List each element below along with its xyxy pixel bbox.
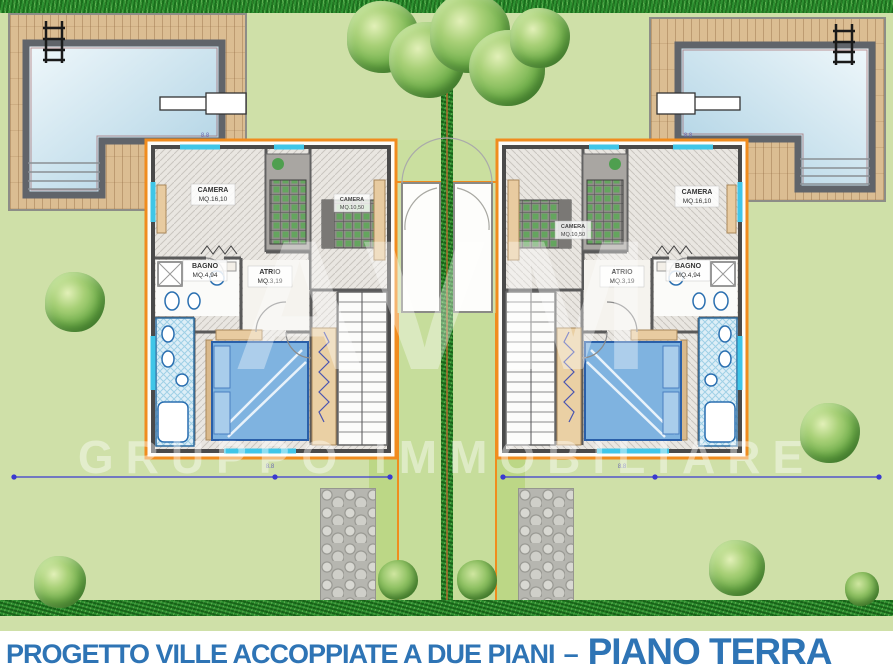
svg-text:MQ.4,94: MQ.4,94 — [676, 272, 701, 279]
entry-corridor-left — [401, 182, 441, 313]
svg-text:BAGNO: BAGNO — [192, 263, 219, 270]
caption-part1: PROGETTO VILLE ACCOPPIATE A DUE PIANI — [6, 639, 555, 670]
tree-icon — [45, 272, 105, 332]
svg-text:MQ.3,19: MQ.3,19 — [258, 278, 283, 285]
bush-icon — [378, 560, 418, 600]
dividing-hedge — [441, 12, 453, 603]
svg-text:ATRIO: ATRIO — [611, 269, 633, 276]
pool-deck-right — [649, 17, 886, 202]
tree-icon — [709, 540, 765, 596]
gate-swing-arc — [405, 188, 437, 230]
caption-part2: PIANO TERRA — [588, 633, 832, 670]
dimension-line-right — [501, 475, 881, 479]
pool-left — [10, 15, 249, 213]
gate-swing-arc — [457, 188, 489, 230]
svg-text:MQ.3,19: MQ.3,19 — [610, 278, 635, 285]
svg-text:8.8: 8.8 — [266, 464, 275, 470]
svg-text:MQ.10,50: MQ.10,50 — [561, 232, 585, 238]
svg-text:CAMERA: CAMERA — [340, 197, 364, 203]
svg-text:CAMERA: CAMERA — [561, 224, 585, 230]
bush-icon — [845, 572, 879, 606]
room-label-camera2-right: CAMERA MQ.10,50 — [555, 221, 591, 239]
svg-text:8.8: 8.8 — [618, 464, 627, 470]
bottom-hedge-strip — [0, 600, 893, 616]
cobblestone-path-right — [518, 488, 574, 602]
tree-icon — [510, 8, 570, 68]
dimension-line-left — [12, 475, 392, 479]
svg-text:MQ.4,94: MQ.4,94 — [193, 272, 218, 279]
room-label-bagno-right: BAGNO MQ.4,94 — [666, 260, 710, 281]
svg-text:BAGNO: BAGNO — [675, 263, 702, 270]
room-label-camera2-left: CAMERA MQ.10,50 — [334, 194, 370, 212]
room-label-atrio-left: ATRIO MQ.3,19 — [248, 266, 292, 287]
tree-icon — [34, 556, 86, 608]
site-plan-image: 8.8 8.8 8.8 8.8 CAMERA MQ.16,10 CAMERA M… — [0, 0, 893, 670]
svg-text:ATRIO: ATRIO — [259, 269, 281, 276]
room-label-atrio-right: ATRIO MQ.3,19 — [600, 266, 644, 287]
entry-corridor-right — [453, 182, 493, 313]
pool-deck-left — [8, 13, 247, 211]
svg-text:MQ.10,50: MQ.10,50 — [340, 205, 364, 211]
cobblestone-path-left — [320, 488, 376, 602]
pool-right — [651, 19, 888, 204]
caption-separator: – — [564, 639, 579, 670]
caption-band: PROGETTO VILLE ACCOPPIATE A DUE PIANI – … — [0, 631, 893, 670]
room-label-bagno-left: BAGNO MQ.4,94 — [183, 260, 227, 281]
tree-icon — [800, 403, 860, 463]
boundary-fence-line — [446, 12, 448, 603]
bush-icon — [457, 560, 497, 600]
